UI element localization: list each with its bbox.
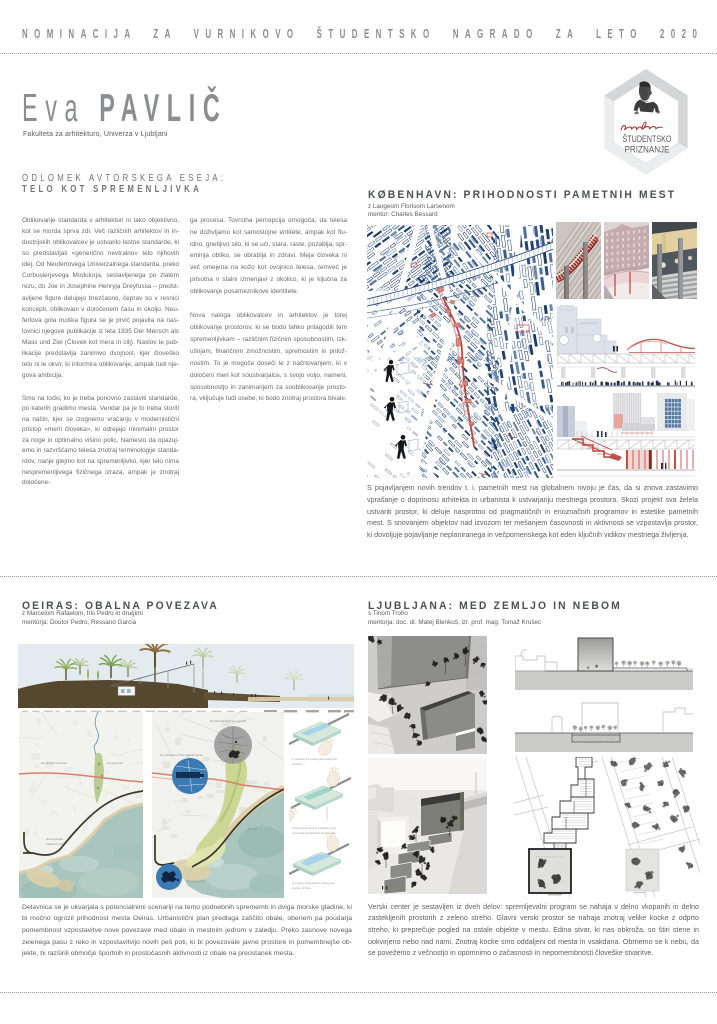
svg-text:ŠTUDENTSKO: ŠTUDENTSKO <box>623 133 672 144</box>
svg-text:program to thrive: program to thrive <box>292 887 312 890</box>
svg-text:PRIZNANJE: PRIZNANJE <box>625 144 670 155</box>
svg-text:the surf: the surf <box>248 827 257 831</box>
svg-text:the green belt: the green belt <box>107 761 123 765</box>
svg-text:2) lowering the level of a coa: 2) lowering the level of a coastline roa… <box>292 827 336 830</box>
svg-text:waterfront road: waterfront road <box>46 842 64 846</box>
svg-text:the railroad connection: the railroad connection <box>41 761 68 765</box>
svg-text:the suspended: the suspended <box>46 837 64 841</box>
svg-text:1) revealing the existing gree: 1) revealing the existing green belt in … <box>292 758 338 761</box>
svg-text:new leisure pool: new leisure pool <box>186 879 205 883</box>
svg-text:the old harbour of the river d: the old harbour of the river de barcas <box>160 753 203 757</box>
svg-text:3) creating zenith spaces, in: 3) creating zenith spaces, inviting new <box>292 882 334 885</box>
svg-text:the old town of oeiras in grey: the old town of oeiras in greyed <box>210 719 247 723</box>
svg-text:countries: countries <box>292 763 303 766</box>
